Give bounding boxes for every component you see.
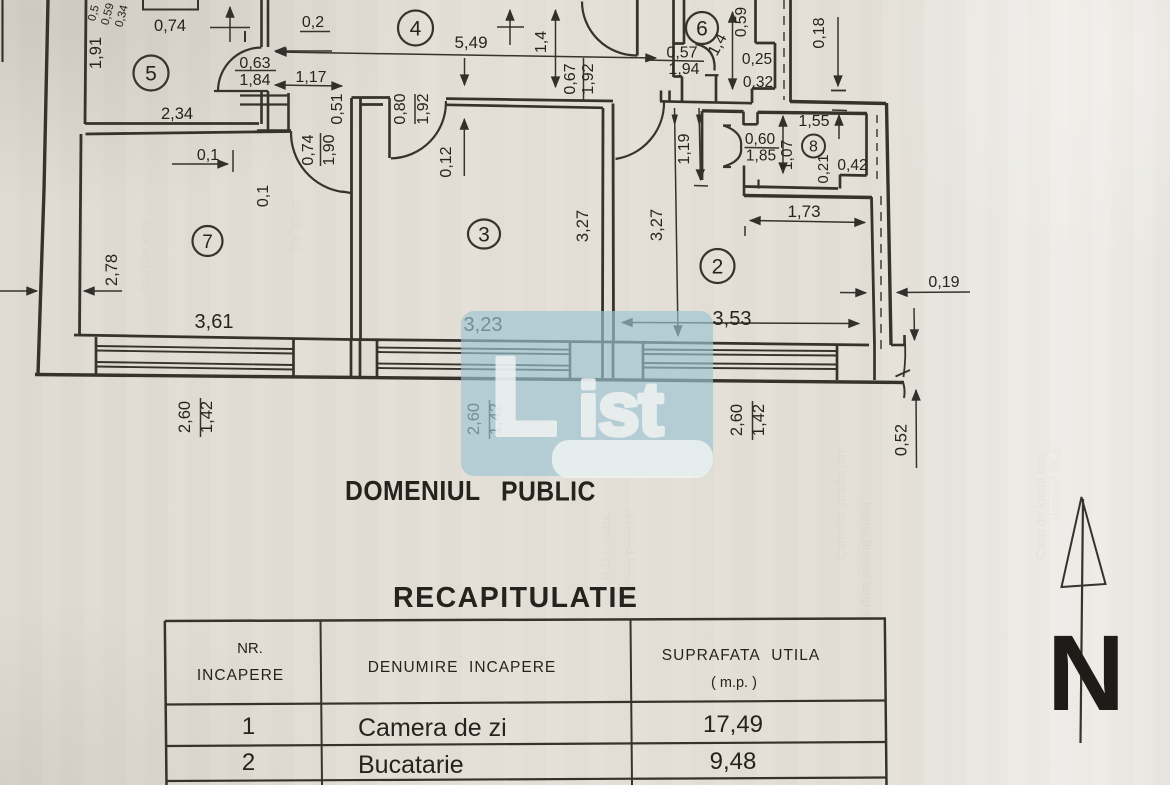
svg-text:2,60: 2,60 [176, 401, 194, 433]
svg-text:1,91: 1,91 [87, 37, 105, 69]
svg-text:N: N [1047, 612, 1125, 733]
svg-text:1,84: 1,84 [239, 72, 270, 89]
svg-text:tecnica serv: tecnica serv [136, 220, 151, 290]
svg-text:0,18: 0,18 [811, 17, 828, 48]
svg-text:2,34: 2,34 [161, 105, 193, 123]
svg-text:6: 6 [696, 18, 708, 41]
svg-text:si data privind imobil: si data privind imobil [858, 502, 873, 620]
svg-text:0,51: 0,51 [329, 93, 346, 124]
svg-text:0,74: 0,74 [300, 134, 317, 165]
svg-text:3,27: 3,27 [574, 210, 592, 242]
svg-text:1,90: 1,90 [321, 134, 338, 165]
svg-text:0,74: 0,74 [154, 17, 186, 35]
svg-text:0,1: 0,1 [255, 185, 272, 207]
svg-text:0,52: 0,52 [893, 424, 911, 456]
svg-text:2: 2 [242, 749, 255, 776]
svg-text:RECAPITULATIE: RECAPITULATIE [393, 582, 638, 614]
svg-text:PUBLIC: PUBLIC [501, 475, 596, 507]
svg-text:1,94: 1,94 [668, 61, 699, 78]
svg-text:3,53: 3,53 [713, 308, 752, 330]
svg-text:DOMENIUL: DOMENIUL [345, 475, 481, 507]
svg-text:data ref 06 E: data ref 06 E [1048, 445, 1063, 520]
svg-text:1,4: 1,4 [533, 31, 550, 53]
svg-text:3,61: 3,61 [195, 311, 234, 333]
svg-text:1,07: 1,07 [779, 140, 796, 170]
svg-text:4: 4 [410, 18, 422, 41]
svg-text:SUPRAFATA UTILA: SUPRAFATA UTILA [662, 647, 820, 664]
svg-text:0,67: 0,67 [562, 63, 579, 94]
svg-text:1,42: 1,42 [198, 401, 216, 433]
svg-text:1,19: 1,19 [676, 133, 693, 164]
svg-text:3: 3 [478, 224, 490, 247]
svg-text:17,49: 17,49 [703, 711, 763, 738]
svg-text:Pe acest: Pe acest [288, 199, 303, 250]
svg-text:0,19: 0,19 [928, 274, 959, 291]
svg-text:1,92: 1,92 [415, 93, 432, 124]
svg-text:Bucatarie: Bucatarie [358, 751, 464, 779]
svg-text:Camelot strada Ion: Camelot strada Ion [833, 450, 848, 560]
svg-text:0,12: 0,12 [438, 146, 455, 177]
svg-text:( m.p. ): ( m.p. ) [711, 675, 757, 691]
svg-text:1,42: 1,42 [750, 404, 768, 436]
svg-text:5,49: 5,49 [454, 33, 487, 52]
svg-text:1,17: 1,17 [295, 69, 326, 86]
svg-text:0,63: 0,63 [239, 55, 270, 72]
svg-text:0,42: 0,42 [837, 157, 867, 174]
svg-text:0,57: 0,57 [666, 45, 697, 62]
svg-text:0,1: 0,1 [197, 147, 219, 164]
svg-text:7: 7 [202, 232, 213, 253]
svg-text:1,73: 1,73 [787, 202, 820, 221]
svg-text:1,55: 1,55 [798, 113, 829, 130]
svg-text:3,27: 3,27 [648, 209, 666, 241]
svg-text:1,85: 1,85 [746, 148, 776, 165]
svg-text:0,21: 0,21 [815, 154, 832, 183]
svg-text:9,48: 9,48 [710, 748, 757, 775]
svg-text:0,60: 0,60 [745, 131, 776, 148]
svg-text:Camera de zi: Camera de zi [358, 714, 507, 742]
svg-text:2,78: 2,78 [103, 254, 121, 286]
svg-text:Casa de locuit etaj: Casa de locuit etaj [1033, 453, 1048, 560]
svg-text:0,25: 0,25 [742, 51, 772, 68]
svg-text:0,59: 0,59 [733, 7, 750, 37]
svg-text:0,80: 0,80 [392, 93, 409, 124]
svg-text:INCAPERE: INCAPERE [197, 667, 284, 684]
svg-text:B D L Petre: B D L Petre [598, 513, 613, 580]
svg-text:8: 8 [809, 139, 818, 156]
svg-text:L: L [490, 334, 558, 459]
svg-text:5: 5 [145, 63, 157, 86]
svg-text:ist: ist [578, 367, 664, 451]
svg-text:NR.: NR. [237, 640, 263, 657]
svg-text:0,32: 0,32 [743, 74, 773, 91]
svg-text:DENUMIRE INCAPERE: DENUMIRE INCAPERE [368, 659, 557, 676]
svg-text:1: 1 [242, 713, 255, 740]
svg-text:2,60: 2,60 [728, 404, 746, 436]
svg-text:1,92: 1,92 [580, 63, 597, 94]
svg-text:0,2: 0,2 [302, 14, 324, 31]
svg-text:2: 2 [712, 256, 724, 279]
svg-text:1,4: 1,4 [705, 31, 730, 59]
